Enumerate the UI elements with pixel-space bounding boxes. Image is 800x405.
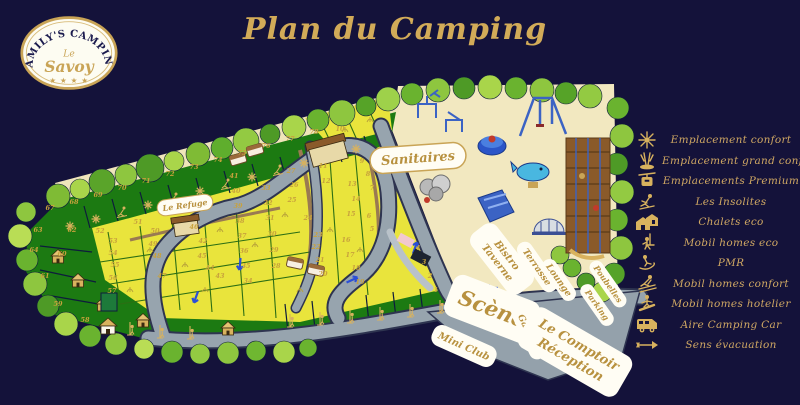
pitch-number: 20 xyxy=(317,270,328,278)
pitch-number: 37 xyxy=(237,232,247,240)
pitch-number: 58 xyxy=(80,316,90,324)
sledge-icon xyxy=(632,253,662,273)
pitch-number: 34 xyxy=(243,277,253,285)
legend-item-emplacement-grand-confort: Emplacement grand confort xyxy=(632,151,800,172)
pitch-number: 52 xyxy=(95,227,105,235)
pitch-number: 55 xyxy=(110,261,120,269)
pitch-number: 47 xyxy=(157,272,167,280)
pitch-number: 43 xyxy=(215,272,225,280)
legend-item-sens-evacuation: Sens évacuation xyxy=(632,335,800,356)
pitch-number: 73 xyxy=(189,163,199,171)
pitch-number: 60 xyxy=(57,250,67,258)
pitch-number: 45 xyxy=(197,252,207,260)
skier-icon xyxy=(632,192,662,212)
pitch-number: 22 xyxy=(310,243,321,251)
pitch-number: 76 xyxy=(261,142,271,150)
legend-item-pmr: PMR xyxy=(632,253,800,274)
pitch-number: 64 xyxy=(29,246,39,254)
camping-plan-poster: 1234567891011121314151617181920212223242… xyxy=(0,0,800,405)
pitch-number: 71 xyxy=(141,177,150,185)
pitch-number: 70 xyxy=(117,184,127,192)
pitch-number: 49 xyxy=(148,240,158,248)
pitch-number: 50 xyxy=(150,227,160,235)
climbing-structure-icon xyxy=(566,138,610,258)
page-title: Plan du Camping xyxy=(230,12,560,47)
pitch-number: 28 xyxy=(270,262,281,270)
pitch-number: 39 xyxy=(233,202,243,210)
legend-item-emplacement-confort: Emplacement confort xyxy=(632,130,800,151)
pitch-number: 12 xyxy=(321,177,331,185)
pitch-number: 10 xyxy=(335,125,345,133)
logo-savoy: Savoy xyxy=(44,58,94,76)
pitch-number: 41 xyxy=(229,172,238,180)
chairlift-icon xyxy=(632,233,662,253)
pitch-number: 2 xyxy=(427,272,433,280)
pitch-number: 3 xyxy=(422,258,427,266)
legend-item-aire-camping-car: Aire Camping Car xyxy=(632,315,800,336)
legend-item-emplacements-premium: Emplacements Premium xyxy=(632,171,800,192)
pitch-number: 11 xyxy=(318,162,327,170)
pitch-number: 44 xyxy=(205,264,215,272)
pitch-number: 33 xyxy=(261,184,271,192)
pitch-number: 31 xyxy=(265,214,274,222)
pitch-number: 67 xyxy=(45,204,55,212)
pitch-number: 26 xyxy=(288,181,299,189)
pitch-number: 14 xyxy=(351,195,361,203)
edelweiss-icon xyxy=(632,130,662,150)
pitch-number: 74 xyxy=(213,156,223,164)
pitch-number: 5 xyxy=(370,225,375,233)
pitch-number: 29 xyxy=(268,246,279,254)
pitch-number: 53 xyxy=(108,237,118,245)
pitch-number: 23 xyxy=(312,231,323,239)
pitch-number: 57 xyxy=(107,287,117,295)
logo-stars: ★ ★ ★ ★ xyxy=(49,76,88,85)
pitch-number: 6 xyxy=(367,212,372,220)
pitch-number: 36 xyxy=(239,247,249,255)
pitch-number: 16 xyxy=(341,236,351,244)
pitch-number: 63 xyxy=(33,226,43,234)
legend-item-mobil-homes-hotelier: Mobil homes hotelier xyxy=(632,294,800,315)
pitch-number: 8 xyxy=(366,170,371,178)
pitch-number: 35 xyxy=(241,262,251,270)
gondola-icon xyxy=(632,171,662,191)
pitch-number: 59 xyxy=(53,300,63,308)
pitch-number: 62 xyxy=(67,226,77,234)
chalets-icon xyxy=(632,212,662,232)
pitch-number: 19 xyxy=(355,278,365,286)
pitch-number: 13 xyxy=(347,180,357,188)
campervan-icon xyxy=(632,315,662,335)
pitch-number: 4 xyxy=(416,244,421,252)
pitch-number: 77 xyxy=(285,135,295,143)
pitch-number: 25 xyxy=(286,196,297,204)
pitch-number: 51 xyxy=(133,218,142,226)
pitch-number: 32 xyxy=(263,199,273,207)
pitch-number: 9 xyxy=(360,157,365,165)
pitch-number: 7 xyxy=(370,184,375,192)
pitch-number: 75 xyxy=(237,149,247,157)
pitch-number: 15 xyxy=(346,210,356,218)
legend-item-mobil-homes-confort: Mobil homes confort xyxy=(632,274,800,295)
pitch-number: 78 xyxy=(309,128,319,136)
legend-item-mobil-homes-eco: Mobil homes eco xyxy=(632,233,800,254)
snowboarder-icon xyxy=(632,294,662,314)
legend-item-les-insolites: Les Insolites xyxy=(632,192,800,213)
evacuation-arrow-icon xyxy=(632,335,662,355)
slalom-skier-icon xyxy=(632,274,662,294)
campsite-logo: FAMILY'S CAMPING Le Savoy ★ ★ ★ ★ xyxy=(10,8,128,98)
pitch-number: 21 xyxy=(314,256,324,264)
info-board xyxy=(101,293,117,311)
pitch-number: 68 xyxy=(69,198,79,206)
pitch-number: 61 xyxy=(40,272,49,280)
pitch-number: 69 xyxy=(93,191,103,199)
legend: Emplacement confort Emplacement grand co… xyxy=(632,130,800,356)
pitch-number: 30 xyxy=(267,230,277,238)
skis-icon xyxy=(632,151,662,171)
pitch-number: 56 xyxy=(108,274,118,282)
pitch-number: 72 xyxy=(165,170,175,178)
pitch-number: 48 xyxy=(152,252,162,260)
pitch-number: 18 xyxy=(351,264,361,272)
pitch-number: 46 xyxy=(189,223,199,231)
legend-item-chalets-eco: Chalets eco xyxy=(632,212,800,233)
pitch-number: 38 xyxy=(235,217,245,225)
pitch-number: 17 xyxy=(345,251,355,259)
pitch-number: 1 xyxy=(434,286,439,294)
pitch-number: 54 xyxy=(108,249,118,257)
pitch-number: 40 xyxy=(231,187,241,195)
pitch-number: 27 xyxy=(285,167,296,175)
pitch-number: 42 xyxy=(198,237,208,245)
pitch-number: 24 xyxy=(302,214,313,222)
